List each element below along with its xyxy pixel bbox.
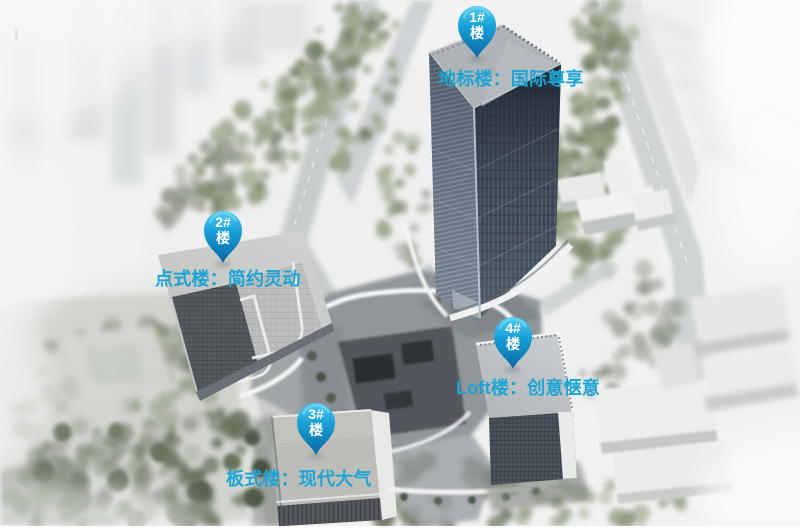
svg-text:Loft楼：创意惬意: Loft楼：创意惬意 [456,377,600,398]
svg-text:楼: 楼 [309,422,323,438]
svg-text:1#: 1# [469,9,485,25]
svg-text:3#: 3# [308,406,324,422]
svg-text:楼: 楼 [216,230,230,246]
svg-text:楼: 楼 [506,336,520,352]
svg-text:4#: 4# [505,320,521,336]
svg-text:2#: 2# [215,214,231,230]
svg-text:地标楼：国际尊享: 地标楼：国际尊享 [438,68,584,89]
svg-text:板式楼：现代大气: 板式楼：现代大气 [226,468,372,489]
svg-text:楼: 楼 [470,25,484,41]
svg-text:点式楼：简约灵动: 点式楼：简约灵动 [155,268,301,289]
